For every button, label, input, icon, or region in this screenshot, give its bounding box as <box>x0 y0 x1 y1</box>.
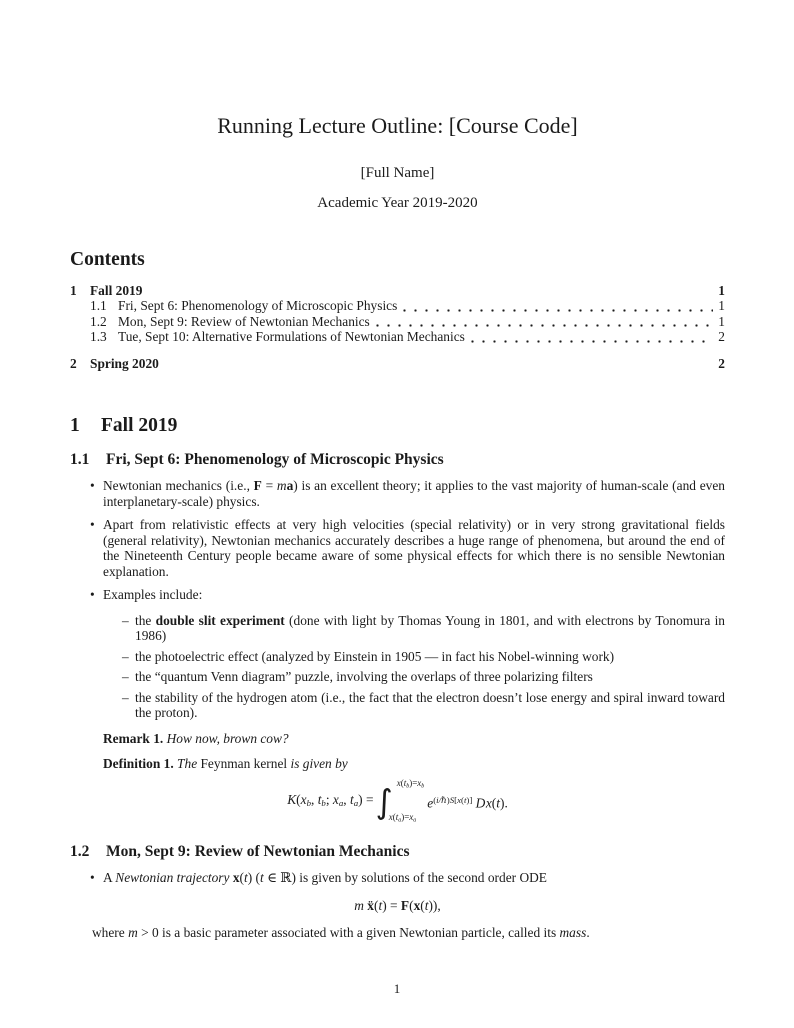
toc-entry-number: 1.3 <box>90 329 118 345</box>
continuation-paragraph: where m > 0 is a basic parameter associa… <box>92 925 725 941</box>
sub-bullet-item: – the photoelectric effect (analyzed by … <box>122 649 725 665</box>
table-of-contents: 1 Fall 2019 1 1.1 Fri, Sept 6: Phenomeno… <box>70 283 725 372</box>
toc-entry-page: 2 <box>718 329 725 345</box>
integral-limits: x(tb)=xb x(ta)=xa <box>393 779 425 824</box>
toc-entry-1-1[interactable]: 1.1 Fri, Sept 6: Phenomenology of Micros… <box>70 298 725 314</box>
dash-marker: – <box>122 690 135 721</box>
sub-bullet-text: the photoelectric effect (analyzed by Ei… <box>135 649 725 665</box>
equation-lhs: K(xb, tb; xa, ta) = <box>287 792 373 812</box>
toc-dot-leader <box>376 324 714 327</box>
definition-paragraph: Definition 1. The Feynman kernel is give… <box>103 756 725 772</box>
page-content: Running Lecture Outline: [Course Code] [… <box>0 0 794 941</box>
toc-entry-page: 1 <box>718 283 725 299</box>
toc-entry-spring-2020[interactable]: 2 Spring 2020 2 <box>70 356 725 372</box>
sub-bullet-item: – the “quantum Venn diagram” puzzle, inv… <box>122 669 725 685</box>
toc-entry-label: Mon, Sept 9: Review of Newtonian Mechani… <box>118 314 370 330</box>
bullet-item: • A Newtonian trajectory x(t) (t ∈ ℝ) is… <box>90 870 725 886</box>
toc-entry-label: Tue, Sept 10: Alternative Formulations o… <box>118 329 465 345</box>
bullet-marker: • <box>90 587 103 603</box>
toc-entry-number: 2 <box>70 356 90 372</box>
dash-marker: – <box>122 669 135 685</box>
toc-entry-label: Fall 2019 <box>90 283 142 299</box>
sub-bullet-text: the double slit experiment (done with li… <box>135 613 725 644</box>
toc-dot-leader <box>403 309 713 312</box>
bullet-text: A Newtonian trajectory x(t) (t ∈ ℝ) is g… <box>103 870 725 886</box>
bullet-text: Examples include: <box>103 587 725 603</box>
toc-entry-page: 1 <box>718 314 725 330</box>
document-title: Running Lecture Outline: [Course Code] <box>70 112 725 140</box>
sub-bullet-item: – the stability of the hydrogen atom (i.… <box>122 690 725 721</box>
contents-heading: Contents <box>70 248 725 271</box>
subsection-heading-1-2: 1.2 Mon, Sept 9: Review of Newtonian Mec… <box>70 843 725 862</box>
integral-block: ∫ x(tb)=xb x(ta)=xa <box>376 779 425 824</box>
sub-bullet-text: the “quantum Venn diagram” puzzle, invol… <box>135 669 725 685</box>
equation-rhs: e(i/ℏ)S[x(t)] Dx(t). <box>427 793 508 811</box>
subsection-number: 1.2 <box>70 843 106 862</box>
subsection-title: Mon, Sept 9: Review of Newtonian Mechani… <box>106 843 410 862</box>
subsection-title: Fri, Sept 6: Phenomenology of Microscopi… <box>106 451 444 470</box>
toc-entry-number: 1 <box>70 283 90 299</box>
page-number: 1 <box>0 981 794 997</box>
section-heading-fall-2019: 1 Fall 2019 <box>70 414 725 437</box>
toc-leader <box>165 366 713 369</box>
toc-entry-fall-2019[interactable]: 1 Fall 2019 1 <box>70 283 725 299</box>
toc-leader <box>148 293 713 296</box>
bullet-marker: • <box>90 517 103 579</box>
toc-entry-1-2[interactable]: 1.2 Mon, Sept 9: Review of Newtonian Mec… <box>70 314 725 330</box>
remark-paragraph: Remark 1. How now, brown cow? <box>103 731 725 747</box>
integral-upper-limit: x(tb)=xb <box>397 779 425 790</box>
bullet-marker: • <box>90 478 103 509</box>
toc-entry-page: 1 <box>718 298 725 314</box>
dash-marker: – <box>122 649 135 665</box>
bullet-text: Newtonian mechanics (i.e., F = ma) is an… <box>103 478 725 509</box>
bullet-item: • Examples include: <box>90 587 725 603</box>
bullet-marker: • <box>90 870 103 886</box>
section-number: 1 <box>70 414 101 437</box>
subsection-heading-1-1: 1.1 Fri, Sept 6: Phenomenology of Micros… <box>70 451 725 470</box>
section-title: Fall 2019 <box>101 414 177 437</box>
dash-marker: – <box>122 613 135 644</box>
toc-entry-number: 1.2 <box>90 314 118 330</box>
bullet-item: • Newtonian mechanics (i.e., F = ma) is … <box>90 478 725 509</box>
document-date: Academic Year 2019-2020 <box>70 196 725 212</box>
sub-bullet-text: the stability of the hydrogen atom (i.e.… <box>135 690 725 721</box>
document-author: [Full Name] <box>70 166 725 182</box>
document-page: Running Lecture Outline: [Course Code] [… <box>0 0 794 1028</box>
toc-dot-leader <box>471 340 713 343</box>
bullet-text: Apart from relativistic effects at very … <box>103 517 725 579</box>
bullet-item: • Apart from relativistic effects at ver… <box>90 517 725 579</box>
integral-lower-limit: x(ta)=xa <box>389 813 425 824</box>
equation-body: m ẍ(t) = F(x(t)), <box>354 898 441 914</box>
feynman-kernel-equation: K(xb, tb; xa, ta) = ∫ x(tb)=xb x(ta)=xa … <box>70 776 725 828</box>
toc-entry-1-3[interactable]: 1.3 Tue, Sept 10: Alternative Formulatio… <box>70 329 725 345</box>
subsection-number: 1.1 <box>70 451 106 470</box>
sub-bullet-item: – the double slit experiment (done with … <box>122 613 725 644</box>
toc-entry-label: Spring 2020 <box>90 356 159 372</box>
toc-entry-label: Fri, Sept 6: Phenomenology of Microscopi… <box>118 298 397 314</box>
toc-entry-page: 2 <box>718 356 725 372</box>
toc-entry-number: 1.1 <box>90 298 118 314</box>
newton-ode-equation: m ẍ(t) = F(x(t)), <box>70 898 725 914</box>
